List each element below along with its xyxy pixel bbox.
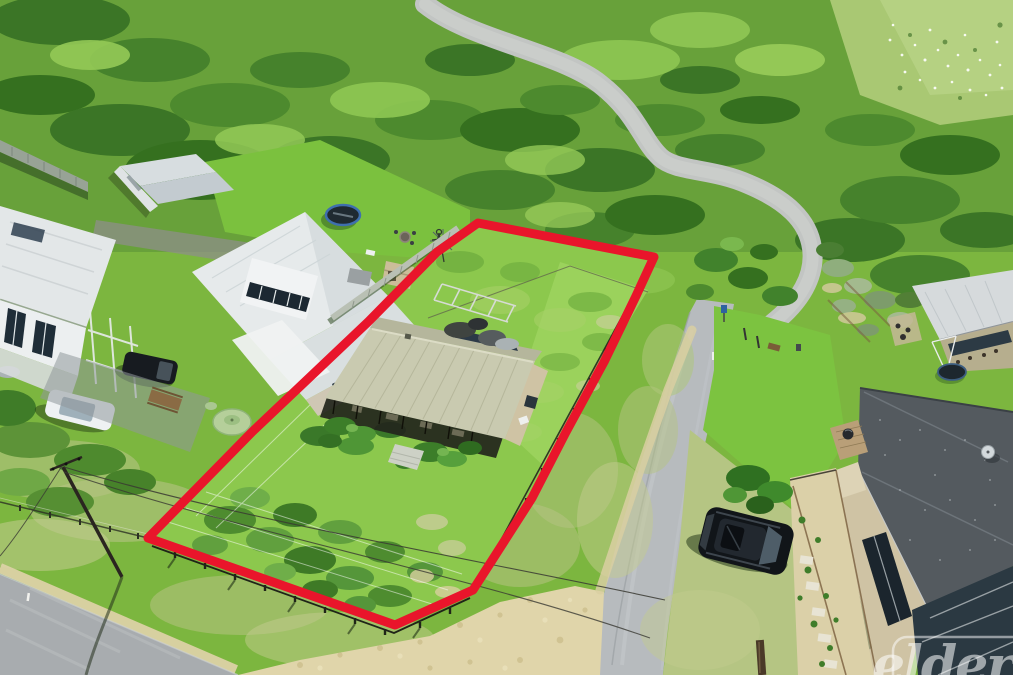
- watermark: elders: [872, 635, 1013, 675]
- trampoline-right: [935, 364, 966, 384]
- watermark-text: elders: [872, 635, 1013, 675]
- aerial-photo: elders: [0, 0, 1013, 675]
- roof-vent: [405, 334, 412, 340]
- aerial-photo-canvas: elders: [0, 0, 1013, 675]
